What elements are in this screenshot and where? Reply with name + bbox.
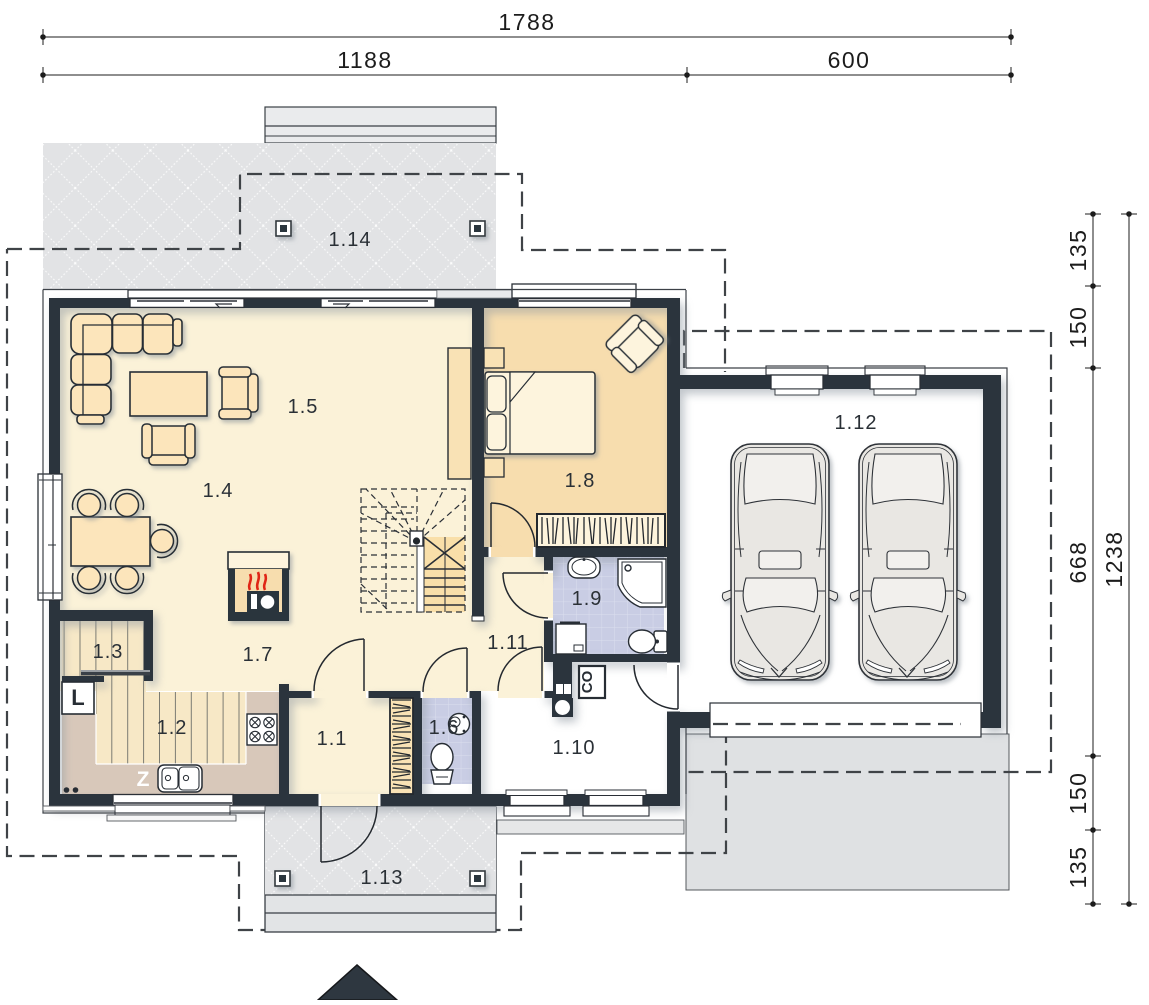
svg-text:1.7: 1.7 bbox=[243, 644, 274, 666]
svg-text:1.8: 1.8 bbox=[565, 470, 596, 492]
svg-text:600: 600 bbox=[828, 47, 871, 73]
svg-text:L: L bbox=[71, 685, 84, 710]
svg-text:CO: CO bbox=[579, 670, 596, 693]
svg-text:135: 135 bbox=[1065, 229, 1091, 272]
svg-text:1.14: 1.14 bbox=[329, 229, 372, 251]
svg-text:1.3: 1.3 bbox=[93, 641, 124, 663]
svg-text:1.9: 1.9 bbox=[572, 588, 603, 610]
svg-text:1.6: 1.6 bbox=[429, 717, 460, 739]
svg-text:150: 150 bbox=[1065, 306, 1091, 349]
svg-text:1.4: 1.4 bbox=[203, 480, 234, 502]
svg-text:668: 668 bbox=[1065, 541, 1091, 584]
svg-text:135: 135 bbox=[1065, 846, 1091, 889]
svg-text:1788: 1788 bbox=[498, 9, 555, 35]
svg-text:1.10: 1.10 bbox=[553, 737, 596, 759]
svg-text:1.12: 1.12 bbox=[835, 412, 878, 434]
svg-text:1.13: 1.13 bbox=[361, 867, 404, 889]
svg-text:1188: 1188 bbox=[337, 47, 392, 73]
svg-text:1.5: 1.5 bbox=[288, 396, 319, 418]
svg-text:1.2: 1.2 bbox=[157, 717, 188, 739]
svg-text:Z: Z bbox=[137, 768, 150, 791]
svg-text:1.1: 1.1 bbox=[317, 728, 348, 750]
svg-text:1.11: 1.11 bbox=[487, 632, 528, 654]
svg-text:150: 150 bbox=[1065, 772, 1091, 815]
svg-text:1238: 1238 bbox=[1101, 530, 1127, 587]
